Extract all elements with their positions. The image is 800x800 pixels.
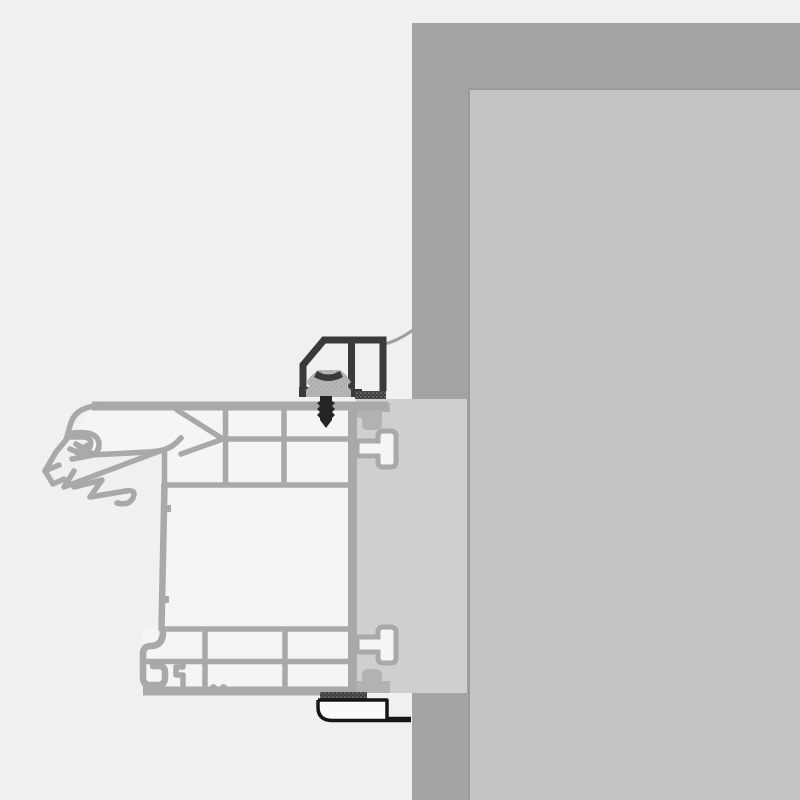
profile-drawing [0, 0, 800, 800]
sealing-membrane-line [384, 330, 413, 344]
sealing-tape-top [355, 391, 386, 399]
sill-end-cap [318, 700, 411, 721]
bracket-clip [306, 370, 351, 397]
frame-chamber-fills [78, 404, 352, 693]
installation-cross-section [0, 0, 800, 800]
